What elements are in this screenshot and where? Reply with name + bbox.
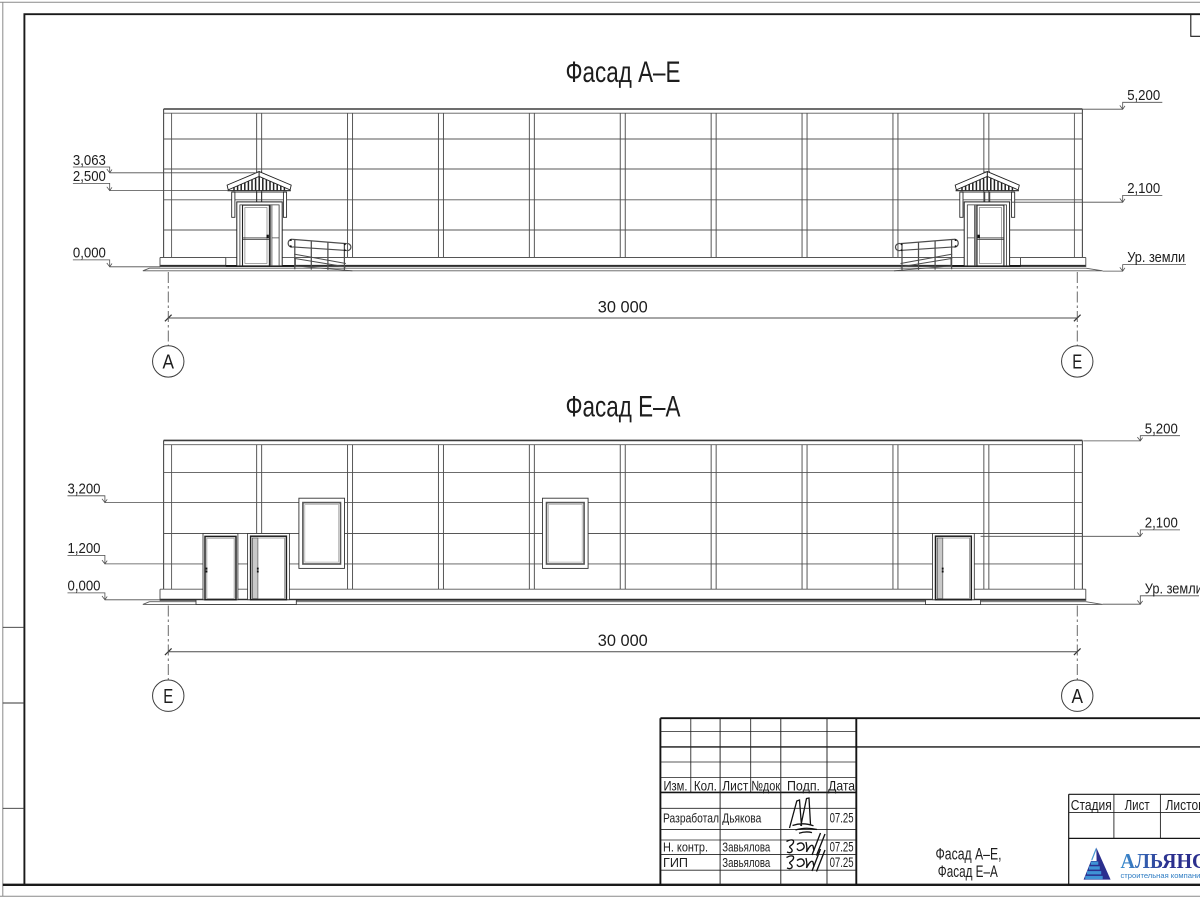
svg-text:Ур. земли: Ур. земли: [1127, 250, 1185, 266]
svg-text:Фасад Е–А: Фасад Е–А: [938, 862, 999, 881]
svg-text:30 000: 30 000: [598, 299, 648, 317]
svg-text:Стадия: Стадия: [1071, 797, 1112, 814]
svg-text:А: А: [1072, 685, 1084, 708]
svg-text:Изм.: Изм.: [664, 777, 688, 793]
svg-text:07.25: 07.25: [830, 840, 854, 855]
svg-text:Дата: Дата: [828, 777, 855, 793]
svg-text:Е: Е: [163, 685, 173, 708]
svg-text:07.25: 07.25: [830, 855, 854, 870]
svg-text:Кол.: Кол.: [694, 777, 717, 793]
svg-text:30 000: 30 000: [598, 632, 648, 650]
svg-text:Завьялова: Завьялова: [722, 840, 771, 855]
svg-text:Завьялова: Завьялова: [722, 855, 771, 870]
svg-text:07.25: 07.25: [830, 811, 854, 826]
svg-text:Фасад Е–А: Фасад Е–А: [566, 391, 681, 424]
svg-text:5,200: 5,200: [1127, 88, 1160, 104]
svg-text:Лист: Лист: [722, 777, 749, 793]
svg-text:Е: Е: [1072, 351, 1082, 374]
svg-text:2,100: 2,100: [1127, 181, 1160, 197]
svg-text:Подп.: Подп.: [787, 777, 820, 793]
svg-text:3,063: 3,063: [73, 153, 106, 169]
svg-text:ГИП: ГИП: [663, 855, 688, 870]
svg-text:Фасад А–Е: Фасад А–Е: [566, 56, 681, 89]
svg-text:1,200: 1,200: [68, 541, 101, 557]
svg-text:Ур. земли: Ур. земли: [1145, 581, 1200, 597]
svg-text:2,100: 2,100: [1145, 516, 1178, 532]
svg-text:Лист: Лист: [1125, 797, 1150, 814]
svg-text:2,500: 2,500: [73, 169, 106, 185]
svg-text:строительная компания: строительная компания: [1121, 871, 1200, 880]
svg-text:АЛЬЯНС: АЛЬЯНС: [1121, 849, 1200, 873]
svg-text:№док: №док: [751, 777, 781, 793]
svg-text:Н. контр.: Н. контр.: [663, 840, 708, 855]
svg-text:Дьякова: Дьякова: [722, 811, 762, 826]
svg-text:А: А: [163, 351, 175, 374]
svg-text:0,000: 0,000: [73, 246, 106, 262]
svg-text:Разработал: Разработал: [663, 811, 719, 826]
svg-text:3,200: 3,200: [68, 482, 101, 498]
svg-text:Листов: Листов: [1166, 797, 1200, 814]
svg-text:0,000: 0,000: [68, 579, 101, 595]
svg-text:5,200: 5,200: [1145, 421, 1178, 437]
svg-text:Фасад А–Е,: Фасад А–Е,: [936, 845, 1002, 864]
